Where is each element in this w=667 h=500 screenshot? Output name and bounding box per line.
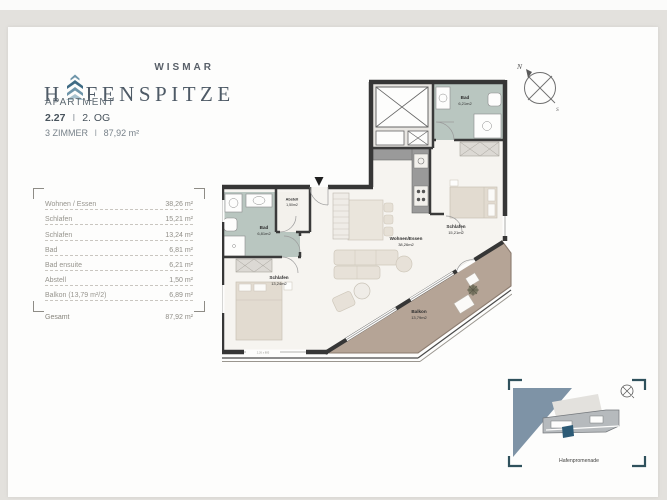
- kitchen-sink-icon: [414, 154, 428, 168]
- toilet-icon: [488, 93, 501, 106]
- shower-icon: [224, 236, 245, 256]
- apartment-meta-line: 3 ZIMMER I 87,92 m²: [45, 128, 139, 138]
- compass-north-label: N: [516, 62, 523, 71]
- apartment-number-line: 2.27 I 2. OG: [45, 112, 139, 124]
- street-label: Hafenpromenade: [559, 458, 599, 464]
- washer-icon: [436, 87, 450, 109]
- table-corner-bracket: [33, 188, 44, 199]
- room-label: Schlafen: [269, 275, 288, 280]
- table-row: Abstell 1,50 m²: [45, 271, 193, 286]
- row-label: Wohnen / Essen: [45, 201, 96, 208]
- row-value: 6,89 m²: [169, 292, 193, 299]
- hafenspitze-building: [543, 410, 619, 438]
- total-value: 87,92 m²: [165, 314, 193, 321]
- room-label: Bad: [461, 95, 470, 100]
- stove-icon: [414, 186, 428, 206]
- elevator-icon: [376, 87, 428, 127]
- side-table-icon: [396, 256, 412, 272]
- row-value: 6,21 m²: [169, 262, 193, 269]
- table-row: Balkon (13,79 m²/2) 6,89 m²: [45, 286, 193, 301]
- row-value: 38,26 m²: [165, 201, 193, 208]
- room-label: Schlafen: [446, 224, 465, 229]
- row-label: Abstell: [45, 277, 66, 284]
- floorplan: 2,26 x 885 Bad 6,21m2 Abstell 1,50m2 Bad…: [222, 60, 512, 365]
- dimension-note: 2,26 x 885: [257, 350, 270, 354]
- apartment-floor: 2. OG: [82, 112, 110, 124]
- room-area: 13,79m2: [411, 315, 427, 320]
- row-value: 13,24 m²: [165, 232, 193, 239]
- room-area: 1,50m2: [286, 203, 298, 207]
- row-label: Balkon (13,79 m²/2): [45, 292, 106, 299]
- location-minimap: Hafenpromenade: [506, 376, 648, 470]
- table-total-row: Gesamt 87,92 m²: [45, 307, 193, 321]
- washer-icon: [225, 194, 242, 212]
- row-label: Schlafen: [45, 232, 72, 239]
- apartment-info: APARTMENT 2.27 I 2. OG 3 ZIMMER I 87,92 …: [45, 97, 139, 138]
- separator: I: [72, 112, 75, 124]
- table-row: Bad ensuite 6,21 m²: [45, 256, 193, 271]
- minimap-compass-icon: [621, 385, 634, 398]
- row-value: 1,50 m²: [169, 277, 193, 284]
- duct-icon: [408, 131, 428, 145]
- compass-rose: N S: [514, 56, 570, 118]
- separator: I: [95, 128, 98, 138]
- table-row: Bad 6,81 m²: [45, 241, 193, 256]
- room-label: Abstell: [286, 198, 299, 202]
- room-label: Wohnen/Essen: [390, 236, 423, 241]
- apartment-rooms: 3 ZIMMER: [45, 128, 88, 138]
- row-label: Schlafen: [45, 216, 72, 223]
- room-area: 15,21m2: [448, 230, 464, 235]
- brand-city: WISMAR: [64, 62, 214, 73]
- compass-needle: [528, 76, 555, 103]
- total-label: Gesamt: [45, 314, 70, 321]
- wardrobe-icon: [236, 259, 272, 272]
- toilet-icon: [224, 218, 237, 231]
- room-label: Balkon: [411, 309, 427, 314]
- area-table-rows: Wohnen / Essen 38,26 m² Schlafen 15,21 m…: [45, 195, 193, 322]
- brochure-screenshot: { "branding": { "city": "WISMAR", "logo_…: [0, 0, 667, 500]
- apartment-location-marker: [562, 425, 574, 438]
- room-area: 13,24m2: [271, 281, 287, 286]
- row-value: 6,81 m²: [169, 247, 193, 254]
- row-label: Bad: [45, 247, 57, 254]
- scan-top-strip: [0, 0, 667, 10]
- sideboard-icon: [333, 193, 349, 239]
- table-corner-bracket: [194, 188, 205, 199]
- vanity-icon: [246, 194, 272, 207]
- table-row: Wohnen / Essen 38,26 m²: [45, 195, 193, 210]
- apartment-total-area: 87,92 m²: [104, 128, 140, 138]
- row-value: 15,21 m²: [165, 216, 193, 223]
- table-corner-bracket: [33, 301, 44, 312]
- wardrobe-icon: [460, 142, 499, 156]
- table-row: Schlafen 13,24 m²: [45, 225, 193, 240]
- table-row: Schlafen 15,21 m²: [45, 210, 193, 225]
- room-label: Bad: [260, 225, 269, 230]
- apartment-label: APARTMENT: [45, 97, 139, 108]
- apartment-number: 2.27: [45, 112, 65, 124]
- area-table: Wohnen / Essen 38,26 m² Schlafen 15,21 m…: [33, 188, 205, 312]
- shaft-box: [376, 131, 404, 145]
- coffee-table-icon: [354, 283, 370, 299]
- compass-south-label: S: [556, 107, 559, 113]
- entrance-arrow-icon: [315, 177, 324, 186]
- room-area: 6,81m2: [257, 231, 271, 236]
- shower-icon: [474, 114, 501, 138]
- room-area: 38,26m2: [398, 242, 414, 247]
- table-corner-bracket: [194, 301, 205, 312]
- row-label: Bad ensuite: [45, 262, 82, 269]
- room-area: 6,21m2: [458, 101, 472, 106]
